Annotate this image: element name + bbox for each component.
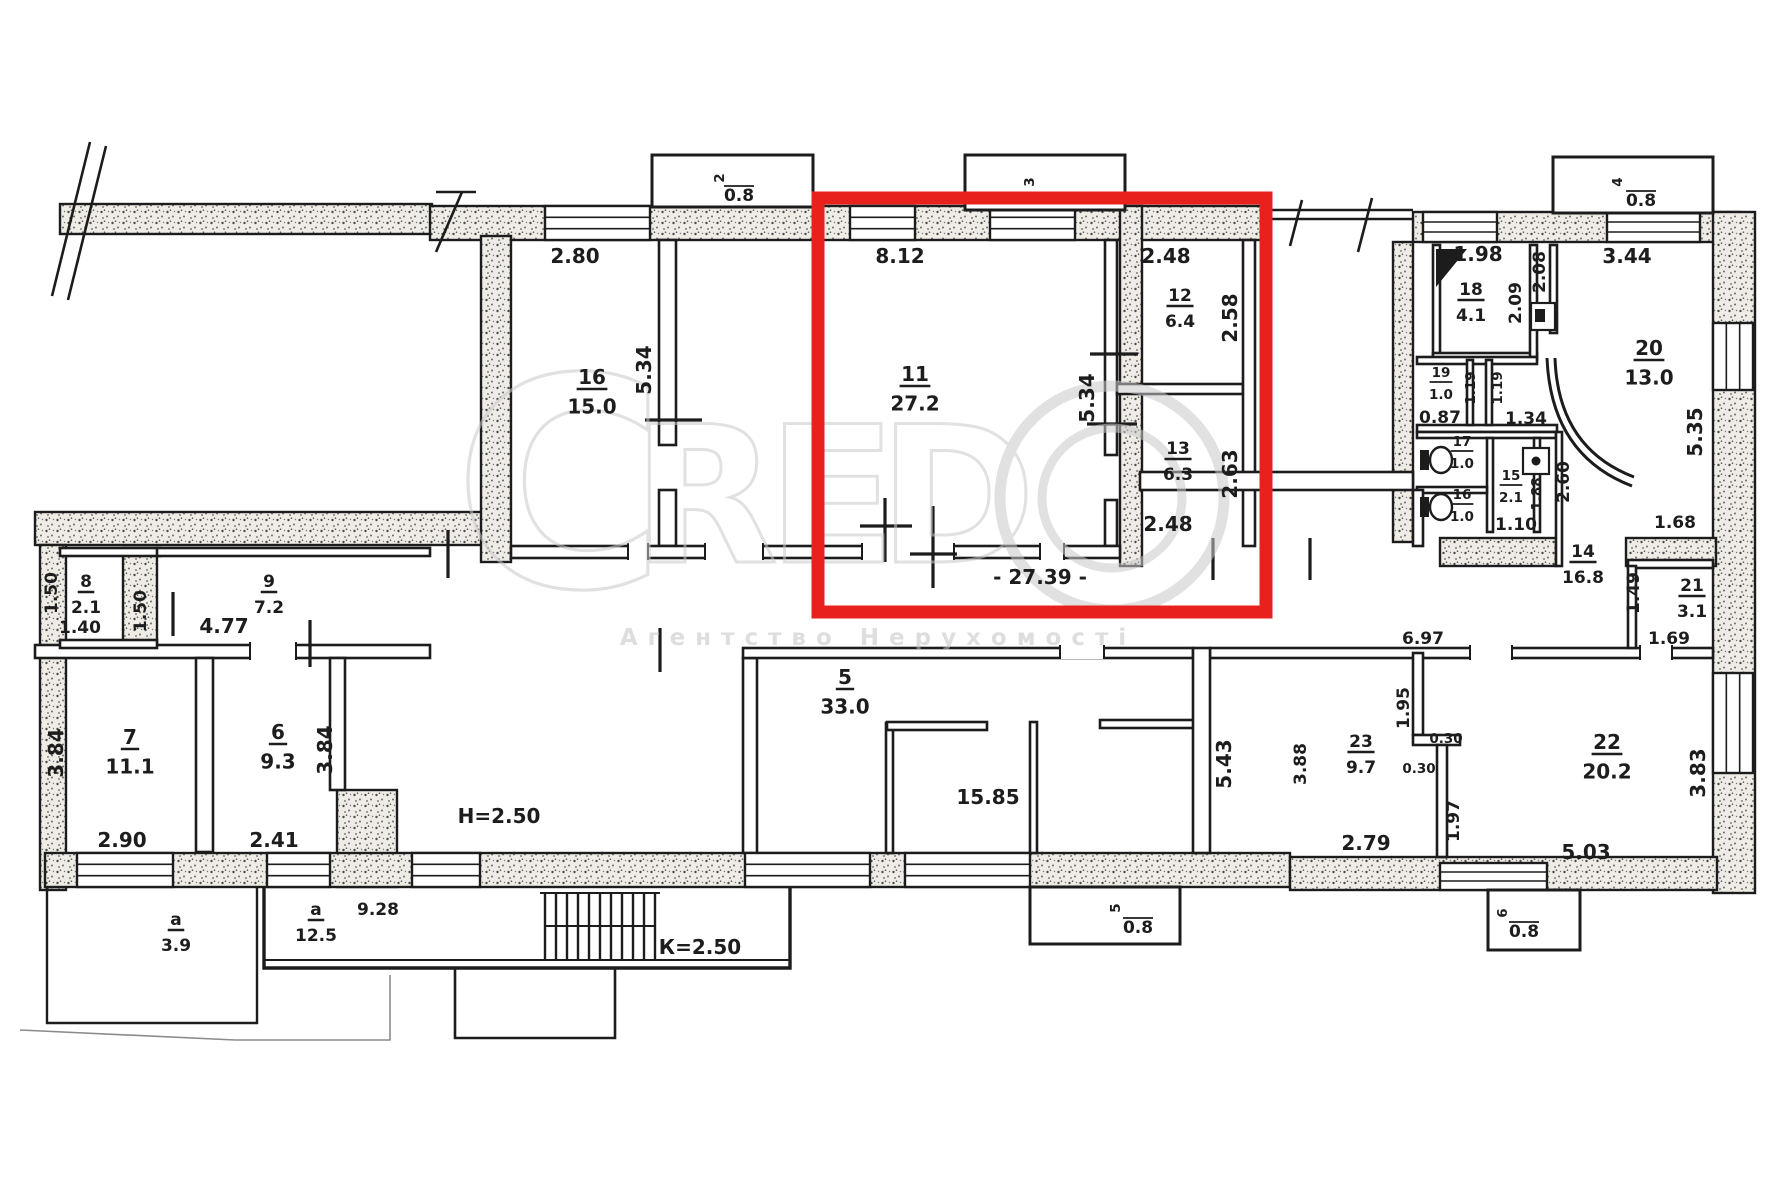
dimension-label: 1.50	[131, 590, 151, 632]
window	[1713, 323, 1753, 390]
window	[1607, 212, 1700, 242]
room-area: 2.1	[1499, 490, 1523, 506]
floor-plan-svg: CREDАгентство Нерухомості 1615.01127.212…	[0, 0, 1772, 1181]
room-number: 11	[901, 362, 929, 386]
room-number: 21	[1680, 576, 1704, 596]
toilet-tank	[1420, 497, 1429, 517]
dimension-label: 9.28	[357, 900, 399, 920]
dimension-label: 3	[1022, 177, 1038, 186]
room-number: 5	[838, 665, 852, 689]
room-area: 9.3	[260, 750, 295, 774]
dimension-label: 4.77	[199, 614, 248, 638]
wall-hatched	[1713, 212, 1755, 893]
dimension-label: 1.97	[1444, 800, 1464, 842]
dimension-label: 2.09	[1506, 282, 1526, 324]
room-area: 20.2	[1582, 760, 1631, 784]
room-number: 16	[578, 365, 606, 389]
dimension-label: 2.48	[1141, 244, 1190, 268]
room-number: 8	[80, 572, 92, 592]
room-area: 6.3	[1163, 465, 1193, 485]
dimension-label: 1.88	[1529, 477, 1545, 510]
dimension-label: 15.85	[956, 785, 1019, 809]
room-number: а	[170, 910, 181, 930]
dimension-label: 0.87	[1419, 408, 1461, 428]
dimension-label: 6.97	[1402, 629, 1444, 649]
room-number: 6	[271, 720, 285, 744]
room-area: 4.1	[1456, 306, 1486, 326]
balcony-bay	[1030, 887, 1180, 944]
dimension-label: 1.68	[1654, 513, 1696, 533]
dimension-label: 1.40	[59, 618, 101, 638]
window	[1440, 863, 1547, 890]
dimension-label: 0.8	[1626, 191, 1656, 211]
dimension-label: 0.8	[724, 186, 754, 206]
room-area: 27.2	[890, 392, 939, 416]
window	[77, 853, 173, 887]
floor-plan-scan: CREDАгентство Нерухомості 1615.01127.212…	[0, 0, 1772, 1181]
dimension-label: 2.08	[1530, 251, 1550, 293]
dimension-label: 2.41	[249, 828, 298, 852]
wall	[1210, 648, 1713, 658]
wall	[1030, 722, 1037, 853]
fixture-detail	[1535, 309, 1545, 322]
window	[545, 206, 650, 240]
dimension-label: 2.48	[1143, 512, 1192, 536]
wall	[887, 722, 987, 730]
room-area: 1.0	[1429, 387, 1453, 403]
dimension-label: 0.30	[1429, 731, 1462, 747]
toilet-tank	[1420, 450, 1429, 470]
room-number: 18	[1459, 280, 1483, 300]
dimension-label: Н=2.50	[458, 804, 541, 828]
room-area: 15.0	[567, 395, 616, 419]
window	[412, 853, 480, 887]
door-opening	[250, 642, 296, 660]
wall	[1193, 648, 1210, 853]
room-area: 33.0	[820, 695, 869, 719]
room-area: 12.5	[295, 926, 337, 946]
dimension-label: 5.43	[1212, 739, 1236, 788]
toilet-bowl	[1430, 447, 1452, 473]
dimension-label: 2.58	[1218, 293, 1242, 342]
room-number: 12	[1168, 286, 1192, 306]
room-area: 11.1	[105, 755, 154, 779]
dimension-label: 2.60	[1554, 461, 1574, 503]
room-number: 9	[263, 572, 275, 592]
window	[850, 206, 915, 240]
dimension-label: 2.63	[1218, 449, 1242, 498]
dimension-label: 1.19	[1490, 371, 1506, 404]
room-number: 14	[1571, 542, 1595, 562]
room-number: 17	[1453, 434, 1472, 450]
dimension-label: 5.34	[632, 345, 656, 394]
dimension-label: 1.50	[42, 572, 62, 614]
window	[267, 853, 330, 887]
wall	[60, 548, 160, 556]
window	[905, 853, 1030, 887]
room-number: 20	[1635, 336, 1663, 360]
room-area: 1.0	[1450, 509, 1474, 525]
dimension-label: 6	[1495, 908, 1511, 917]
window	[745, 853, 870, 887]
dimension-label: К=2.50	[659, 935, 741, 959]
dimension-label: 2.90	[97, 828, 146, 852]
room-area: 13.0	[1624, 366, 1673, 390]
dimension-label: 1.98	[1453, 242, 1502, 266]
dimension-label: 5	[1108, 903, 1124, 912]
dimension-label: 1.10	[1495, 515, 1537, 535]
wall	[1628, 560, 1713, 568]
dimension-label: 0.30	[1402, 761, 1435, 777]
dimension-label: 3.44	[1602, 244, 1651, 268]
dimension-label: 2	[712, 173, 728, 182]
dimension-label: 5.35	[1683, 407, 1707, 456]
dimension-label: 3.84	[44, 728, 68, 777]
room-area: 2.1	[71, 598, 101, 618]
wall	[1243, 240, 1255, 546]
dimension-label: 0.8	[1509, 922, 1539, 942]
room-number: 15	[1502, 468, 1521, 484]
window	[1713, 673, 1753, 773]
dimension-label: 1.19	[1463, 371, 1479, 404]
room-number: а	[310, 900, 321, 920]
room-number: 7	[123, 725, 137, 749]
dimension-label: 8.12	[875, 244, 924, 268]
wall-hatched	[1393, 242, 1413, 542]
watermark-tagline: Агентство Нерухомості	[620, 625, 1136, 651]
sink-drain	[1532, 457, 1541, 466]
dimension-label: 1.34	[1505, 409, 1547, 429]
dimension-label: 1.49	[1624, 572, 1644, 614]
wall	[1417, 357, 1537, 364]
wall	[1105, 500, 1117, 546]
wall-hatched	[60, 204, 432, 234]
dimension-label: 0.8	[1123, 918, 1153, 938]
dimension-label: 3.83	[1686, 748, 1710, 797]
wall	[886, 723, 893, 853]
room-area: 7.2	[254, 598, 284, 618]
wall	[1413, 653, 1423, 735]
room-number: 22	[1593, 730, 1621, 754]
dimension-label: - 27.39 -	[993, 565, 1087, 589]
dimension-label: 5.03	[1561, 840, 1610, 864]
wall	[157, 548, 430, 556]
dimension-label: 3.84	[313, 725, 337, 774]
wall-hatched	[45, 853, 1290, 887]
dimension-label: 2.79	[1341, 831, 1390, 855]
wall-hatched	[1440, 538, 1556, 566]
dimension-label: 5.34	[1075, 373, 1099, 422]
wall	[1100, 720, 1205, 728]
wall	[1487, 438, 1493, 532]
room-area: 6.4	[1165, 312, 1195, 332]
window	[1423, 212, 1497, 242]
dimension-label: 4	[1610, 177, 1626, 186]
wall	[196, 658, 213, 852]
dimension-label: 2.80	[550, 244, 599, 268]
room-number: 16	[1453, 487, 1472, 503]
door-opening	[1470, 645, 1512, 660]
toilet-bowl	[1430, 494, 1452, 520]
wall	[743, 658, 757, 853]
dimension-label: 1.95	[1394, 687, 1414, 729]
wall-hatched	[35, 512, 490, 545]
room-area: 3.9	[161, 936, 191, 956]
room-area: 16.8	[1562, 568, 1604, 588]
dimension-label: 3.88	[1291, 743, 1311, 785]
room-number: 19	[1432, 365, 1451, 381]
room-number: 23	[1349, 732, 1373, 752]
dimension-label: 1.69	[1648, 629, 1690, 649]
room-area: 1.0	[1450, 456, 1474, 472]
wall	[60, 640, 157, 648]
watermark-letter: R	[632, 386, 778, 607]
room-area: 3.1	[1677, 602, 1707, 622]
room-number: 13	[1166, 439, 1190, 459]
room-area: 9.7	[1346, 758, 1376, 778]
